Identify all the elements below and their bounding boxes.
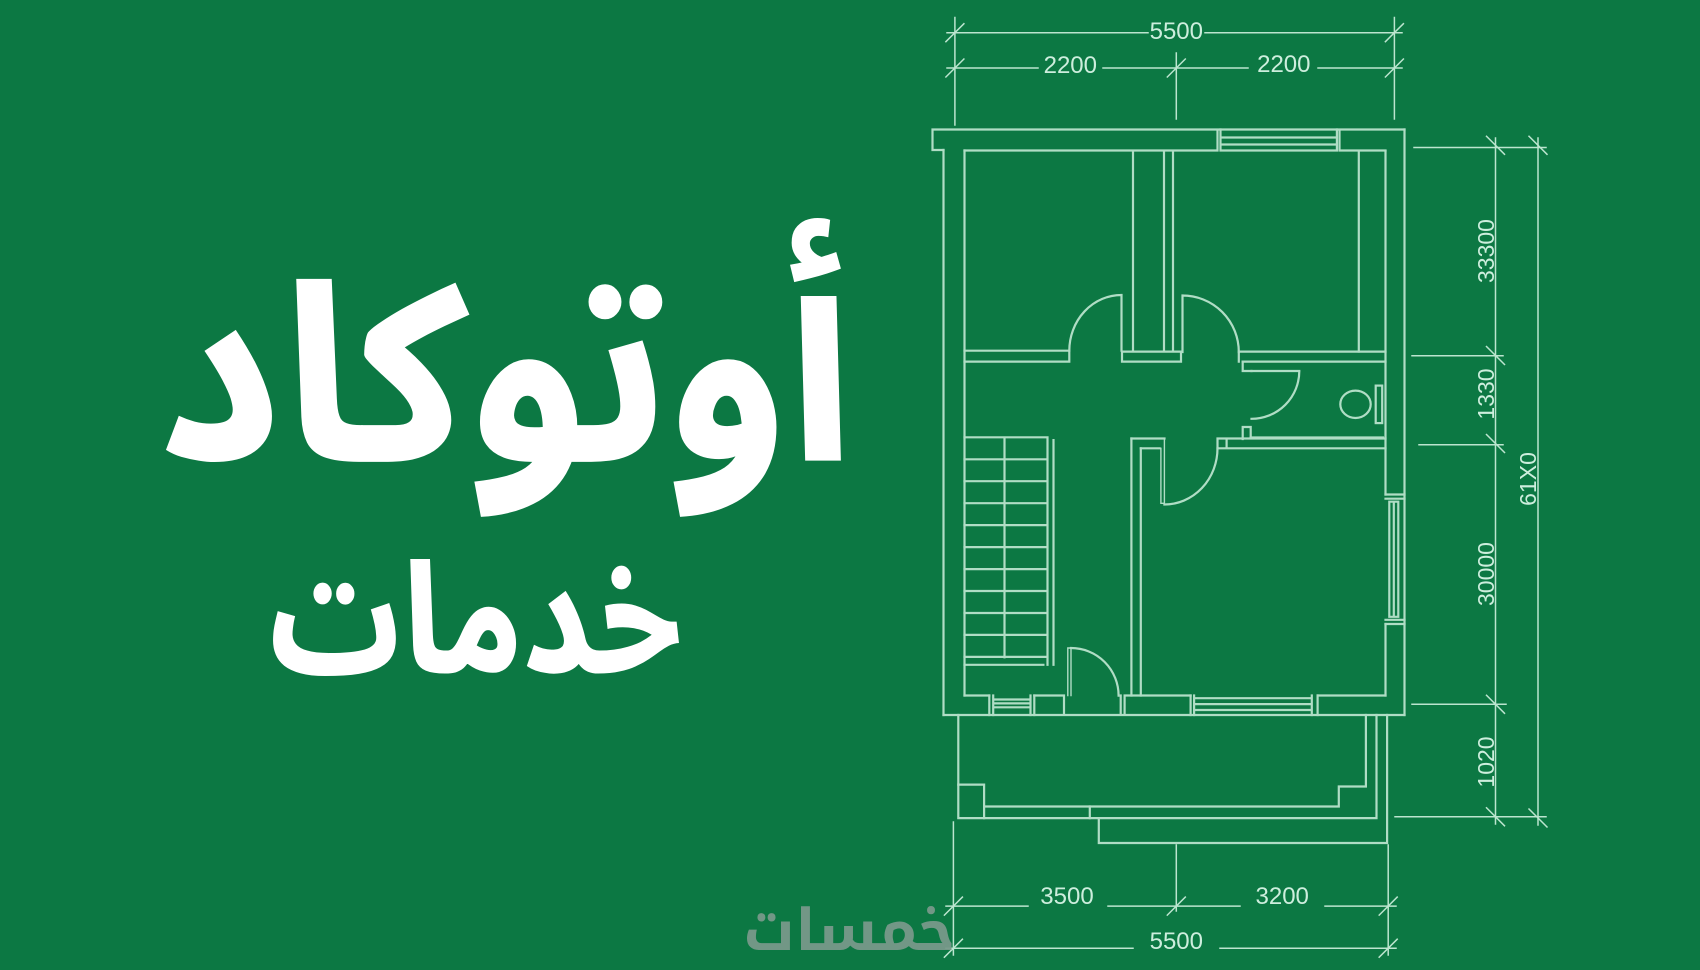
svg-text:5500: 5500 (1150, 18, 1203, 45)
svg-text:2200: 2200 (1044, 52, 1097, 79)
svg-text:30000: 30000 (1473, 542, 1499, 606)
svg-text:61X0: 61X0 (1515, 452, 1541, 506)
svg-text:2200: 2200 (1257, 51, 1310, 78)
svg-text:33300: 33300 (1473, 219, 1499, 283)
svg-text:1330: 1330 (1473, 368, 1499, 419)
svg-text:3500: 3500 (1040, 883, 1093, 910)
svg-text:5500: 5500 (1150, 928, 1203, 955)
svg-text:3200: 3200 (1256, 883, 1309, 910)
svg-text:1020: 1020 (1473, 736, 1499, 787)
